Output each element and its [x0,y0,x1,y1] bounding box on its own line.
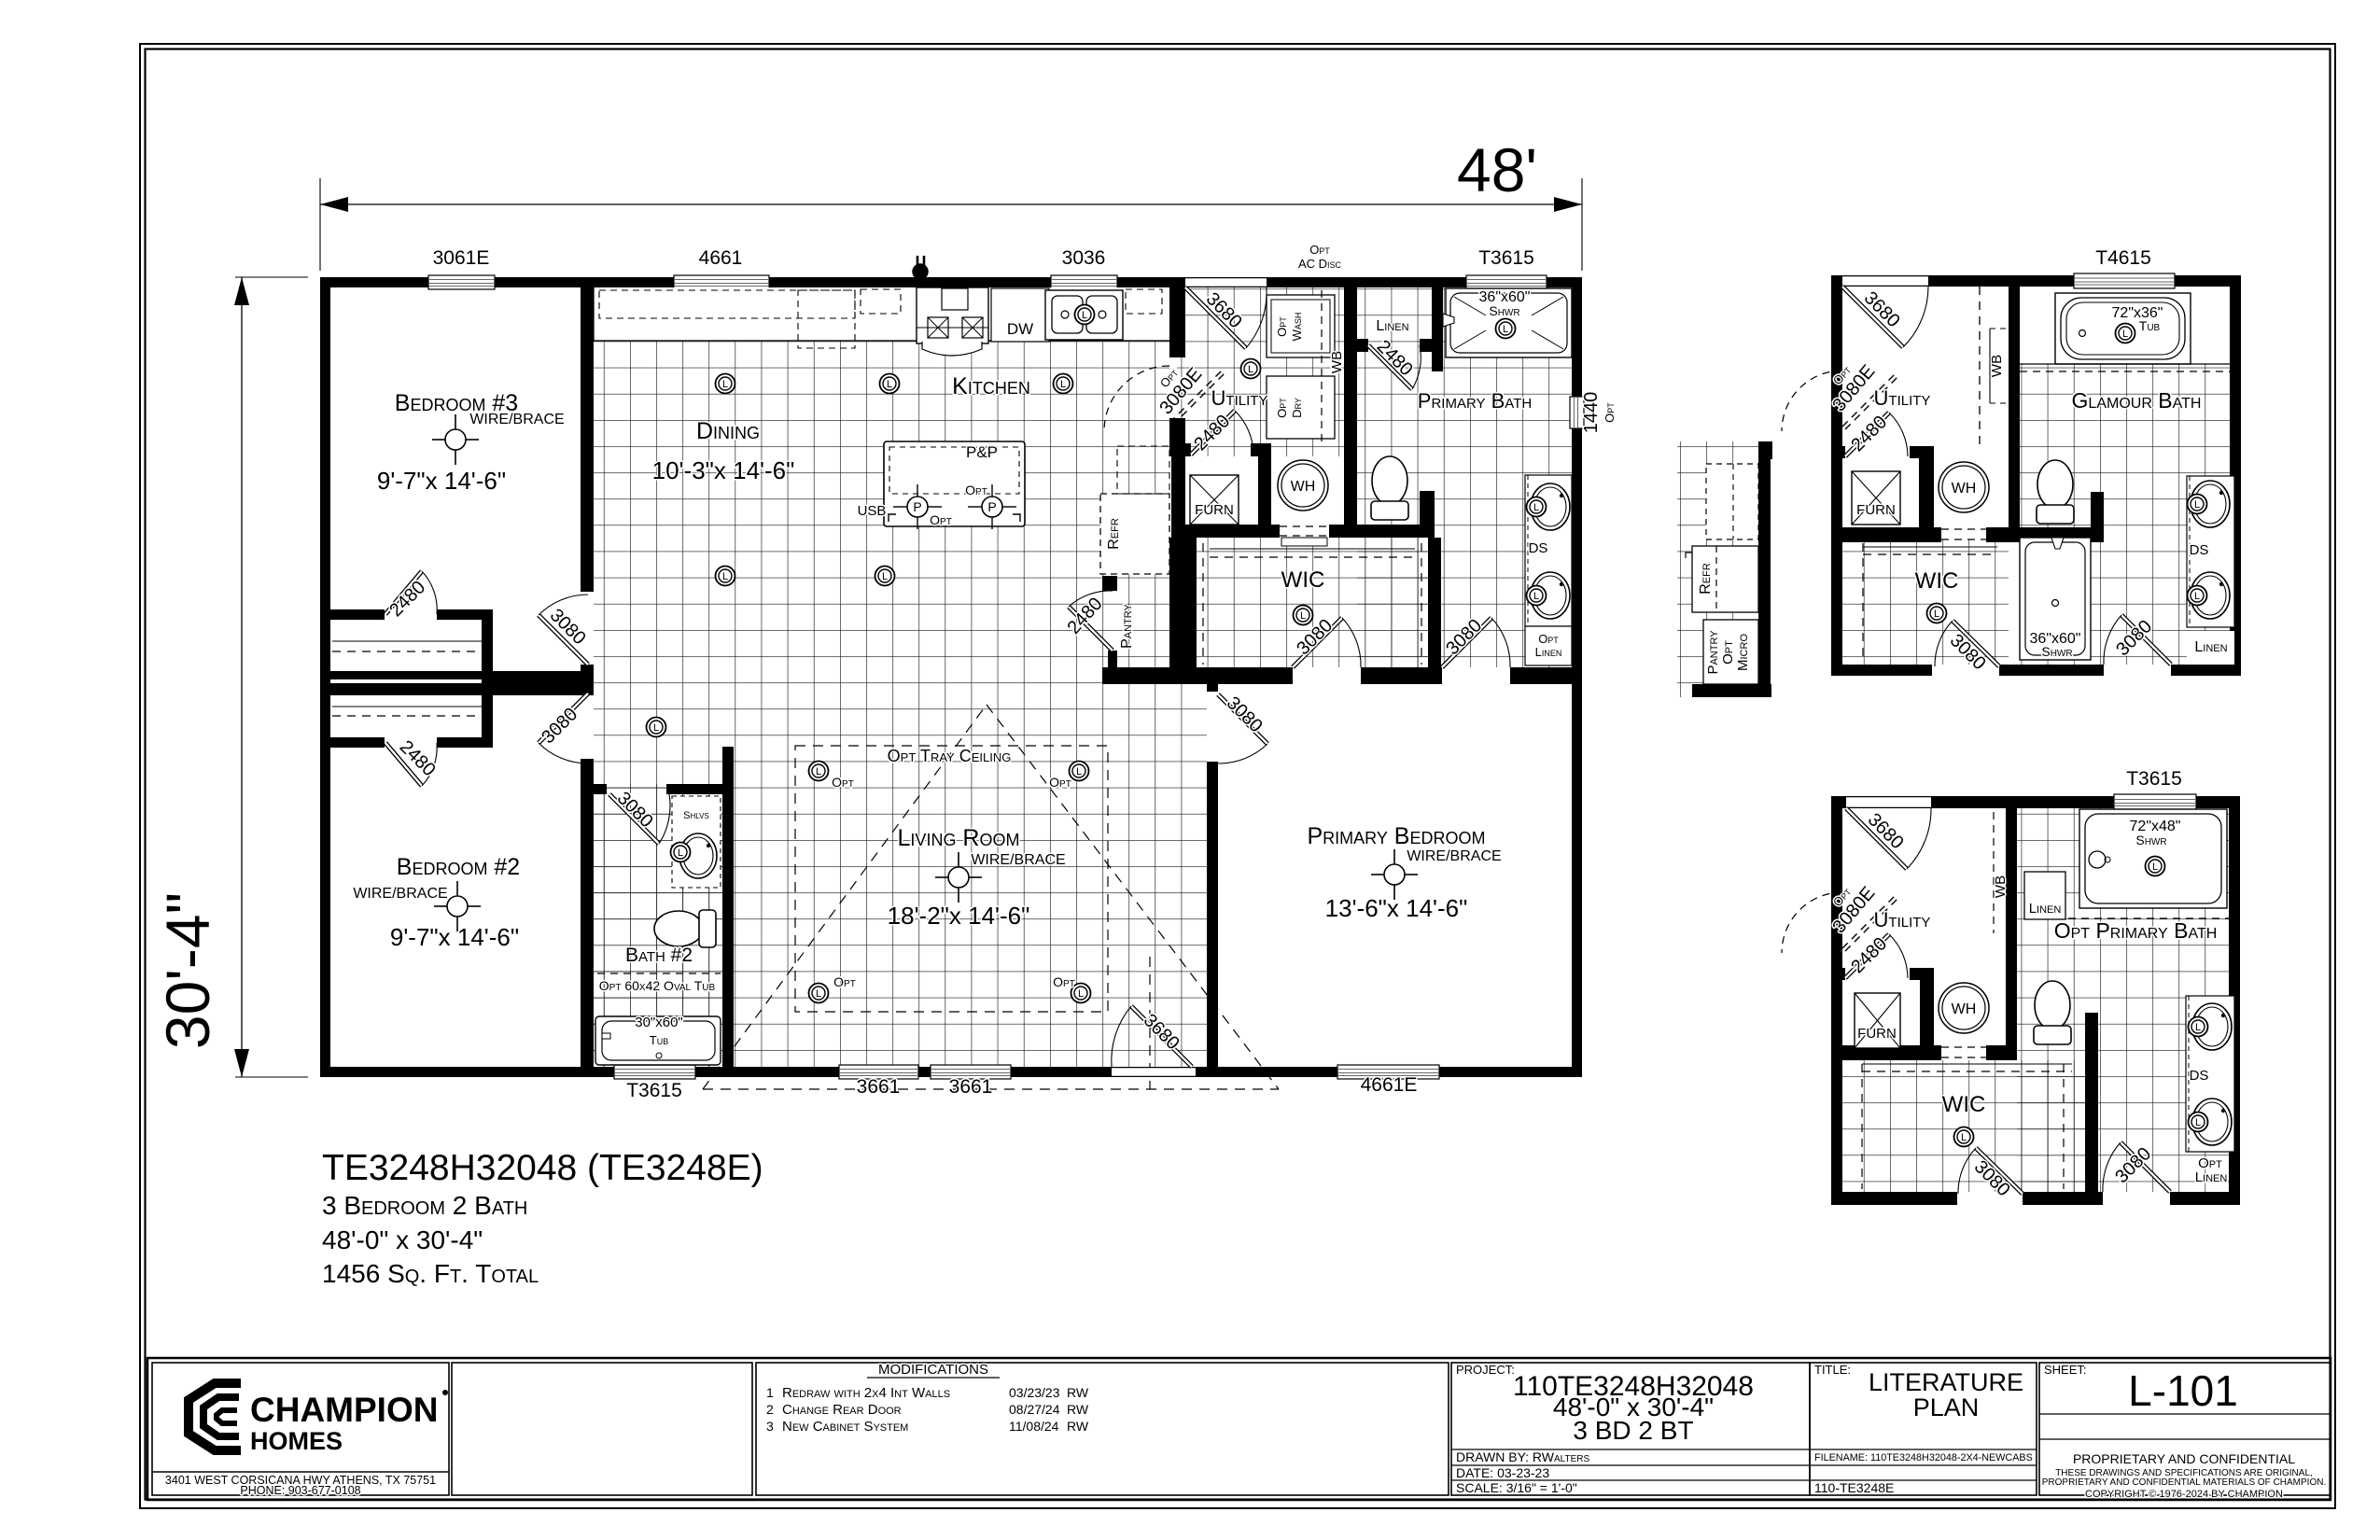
svg-text:FURN: FURN [1857,1026,1897,1042]
svg-text:Primary Bedroom: Primary Bedroom [1308,823,1486,849]
svg-text:Opt: Opt [1275,398,1289,418]
svg-text:Refr: Refr [1106,518,1122,550]
svg-text:2: 2 [766,1402,774,1417]
svg-text:L: L [653,722,659,734]
svg-text:Opt 60x42 Oval Tub: Opt 60x42 Oval Tub [599,978,716,993]
svg-text:L: L [1503,324,1508,335]
svg-text:SCALE: 3/16" = 1'-0": SCALE: 3/16" = 1'-0" [1456,1480,1577,1495]
svg-text:30'-4": 30'-4" [153,892,222,1049]
svg-text:WB: WB [1329,351,1345,373]
svg-text:110-TE3248E: 110-TE3248E [1814,1480,1894,1495]
svg-text:4661: 4661 [699,247,743,269]
svg-text:T4615: T4615 [2095,247,2151,269]
svg-text:L: L [2195,1022,2201,1033]
svg-text:Utility: Utility [1211,386,1268,410]
svg-text:L: L [1060,379,1066,390]
svg-text:Opt: Opt [965,483,987,497]
svg-text:3: 3 [766,1419,774,1434]
svg-text:WIRE/BRACE: WIRE/BRACE [353,886,447,902]
svg-text:03/23/23: 03/23/23 [1009,1385,1060,1400]
svg-text:Opt: Opt [832,775,854,790]
svg-text:Opt: Opt [833,974,856,989]
svg-text:L: L [816,988,821,1000]
svg-text:Utility: Utility [1874,386,1931,410]
svg-text:WH: WH [1952,481,1977,497]
svg-text:4661E: 4661E [1361,1074,1418,1096]
svg-text:Redraw with 2x4 Int Walls: Redraw with 2x4 Int Walls [782,1385,950,1401]
svg-text:3061E: 3061E [433,247,490,269]
svg-text:RW: RW [1067,1419,1089,1434]
svg-text:AC Disc: AC Disc [1298,257,1342,271]
svg-text:WIRE/BRACE: WIRE/BRACE [469,412,564,427]
svg-text:Micro: Micro [1735,634,1751,671]
svg-text:Shlvs: Shlvs [683,810,709,821]
svg-text:30"x60": 30"x60" [635,1015,683,1030]
svg-text:COPYRIGHT © 1976-2024 BY CHAMP: COPYRIGHT © 1976-2024 BY CHAMPION [2085,1489,2283,1500]
svg-text:Opt: Opt [1275,316,1289,337]
svg-text:FILENAME: 110TE3248H32048-2X4-: FILENAME: 110TE3248H32048-2X4-NEWCABS [1814,1452,2033,1463]
svg-text:DW: DW [1007,320,1033,338]
svg-text:WB: WB [1993,875,2009,898]
svg-text:48': 48' [1457,135,1537,204]
svg-text:DS: DS [1529,540,1548,556]
svg-text:Shwr: Shwr [2041,644,2072,659]
svg-text:RW: RW [1067,1402,1089,1417]
svg-text:DATE: 03-23-23: DATE: 03-23-23 [1456,1465,1549,1480]
svg-text:Kitchen: Kitchen [952,373,1030,399]
svg-text:T3615: T3615 [2126,768,2182,790]
svg-text:P&P: P&P [966,443,998,461]
svg-text:WIC: WIC [1942,1092,1986,1117]
svg-text:Glamour Bath: Glamour Bath [2072,388,2202,413]
svg-text:Opt: Opt [1309,243,1330,257]
svg-text:DRAWN BY: RWalters: DRAWN BY: RWalters [1456,1449,1589,1464]
svg-text:DS: DS [2190,1068,2209,1084]
svg-text:WIC: WIC [1281,567,1325,593]
svg-text:LITERATURE: LITERATURE [1869,1368,2023,1396]
svg-text:Living Room: Living Room [898,825,1020,851]
svg-text:3 BD 2 BT: 3 BD 2 BT [1573,1416,1693,1445]
svg-text:L: L [882,571,888,582]
svg-text:DS: DS [2190,542,2209,558]
svg-text:WH: WH [1952,1001,1977,1017]
svg-text:RW: RW [1067,1385,1089,1400]
svg-text:L: L [1300,610,1306,622]
svg-text:HOMES: HOMES [250,1427,343,1455]
svg-text:T3615: T3615 [1478,247,1534,269]
svg-text:1: 1 [766,1385,774,1400]
svg-text:Opt: Opt [1538,632,1559,646]
svg-text:08/27/24: 08/27/24 [1009,1402,1060,1417]
svg-text:PROPRIETARY AND CONFIDENTIAL: PROPRIETARY AND CONFIDENTIAL [2073,1451,2295,1466]
svg-text:PROJECT:: PROJECT: [1456,1363,1515,1377]
svg-text:3 Bedroom 2 Bath: 3 Bedroom 2 Bath [322,1191,527,1220]
svg-text:L: L [1961,1132,1967,1143]
svg-text:PROPRIETARY AND CONFIDENTIAL M: PROPRIETARY AND CONFIDENTIAL MATERIALS O… [2042,1477,2327,1488]
svg-text:9'-7"x 14'-6": 9'-7"x 14'-6" [390,923,519,951]
svg-text:WH: WH [1291,479,1316,495]
svg-text:11/08/24: 11/08/24 [1009,1419,1059,1434]
svg-text:1456 Sq. Ft. Total: 1456 Sq. Ft. Total [322,1259,539,1288]
svg-text:Opt: Opt [1603,402,1617,423]
svg-text:Opt: Opt [930,512,952,527]
svg-text:WIRE/BRACE: WIRE/BRACE [971,852,1065,868]
svg-text:Linen: Linen [2194,639,2227,655]
svg-text:L: L [1248,364,1253,375]
svg-text:Tub: Tub [650,1033,668,1047]
svg-text:L: L [2195,1117,2201,1128]
svg-text:Pantry: Pantry [1119,603,1135,648]
svg-text:Opt: Opt [1720,640,1736,665]
svg-text:L: L [816,766,821,777]
svg-text:L: L [2194,591,2200,602]
svg-text:L: L [1533,591,1539,602]
svg-text:9'-7"x 14'-6": 9'-7"x 14'-6" [377,467,506,495]
svg-text:Refr: Refr [1698,563,1714,595]
svg-text:Change Rear Door: Change Rear Door [782,1402,902,1418]
svg-text:FURN: FURN [1856,502,1896,518]
svg-text:Opt: Opt [1053,974,1075,989]
svg-text:WIRE/BRACE: WIRE/BRACE [1407,848,1501,864]
svg-text:Bedroom #2: Bedroom #2 [397,854,520,880]
svg-text:FURN: FURN [1195,502,1234,518]
svg-text:Shwr: Shwr [2135,833,2166,847]
svg-text:3661: 3661 [949,1076,993,1098]
svg-text:L: L [887,379,892,390]
svg-text:Linen: Linen [2195,1169,2228,1185]
svg-text:Wash: Wash [1290,313,1304,342]
svg-text:L: L [1082,310,1087,321]
svg-text:3661: 3661 [857,1076,901,1098]
svg-text:L: L [1076,766,1082,777]
svg-text:WIC: WIC [1915,568,1959,594]
svg-text:Dry: Dry [1290,398,1304,418]
svg-text:Linen: Linen [2029,901,2062,917]
svg-text:Opt: Opt [1049,775,1071,790]
svg-text:TE3248H32048 (TE3248E): TE3248H32048 (TE3248E) [322,1148,763,1188]
svg-text:Utility: Utility [1874,908,1931,931]
svg-text:USB: USB [858,503,887,519]
svg-text:3036: 3036 [1062,247,1106,269]
svg-text:L: L [1533,502,1539,513]
svg-text:Linen: Linen [1376,318,1408,334]
svg-text:CHAMPION: CHAMPION [250,1391,438,1429]
svg-text:New Cabinet System: New Cabinet System [782,1419,908,1435]
svg-text:13'-6"x 14'-6": 13'-6"x 14'-6" [1325,894,1468,922]
svg-text:L: L [1934,609,1939,620]
svg-text:P: P [987,499,996,514]
svg-text:SHEET:: SHEET: [2044,1363,2087,1377]
svg-text:Opt Tray Ceiling: Opt Tray Ceiling [888,747,1012,765]
svg-text:Bath #2: Bath #2 [625,945,693,966]
svg-text:L: L [722,571,728,582]
svg-text:Tub: Tub [2139,318,2161,333]
svg-text:L: L [1078,988,1084,1000]
svg-text:Opt Primary Bath: Opt Primary Bath [2054,918,2218,943]
svg-text:P: P [913,499,921,514]
svg-text:Dining: Dining [696,418,760,444]
svg-text:TITLE:: TITLE: [1814,1363,1851,1377]
svg-text:Primary Bath: Primary Bath [1418,389,1532,413]
svg-text:48'-0" x 30'-4": 48'-0" x 30'-4" [322,1225,483,1254]
svg-text:Pantry: Pantry [1705,630,1721,675]
svg-text:L: L [2122,329,2128,340]
svg-text:L: L [678,847,683,859]
svg-text:Linen: Linen [1535,645,1562,659]
svg-text:T3615: T3615 [626,1080,682,1101]
svg-text:Shwr: Shwr [1489,303,1519,318]
svg-text:18'-2"x 14'-6": 18'-2"x 14'-6" [888,902,1030,930]
svg-text:PHONE: 903-677-0108: PHONE: 903-677-0108 [240,1484,360,1497]
svg-text:MODIFICATIONS: MODIFICATIONS [878,1362,988,1378]
svg-text:WB: WB [1989,355,2005,377]
svg-text:L: L [2152,861,2158,873]
svg-text:L-101: L-101 [2128,1366,2238,1415]
svg-text:PLAN: PLAN [1913,1393,1980,1421]
svg-text:L: L [722,379,728,390]
svg-text:1440: 1440 [1581,392,1602,434]
svg-text:10'-3"x 14'-6": 10'-3"x 14'-6" [652,456,795,484]
svg-text:L: L [2194,499,2200,511]
